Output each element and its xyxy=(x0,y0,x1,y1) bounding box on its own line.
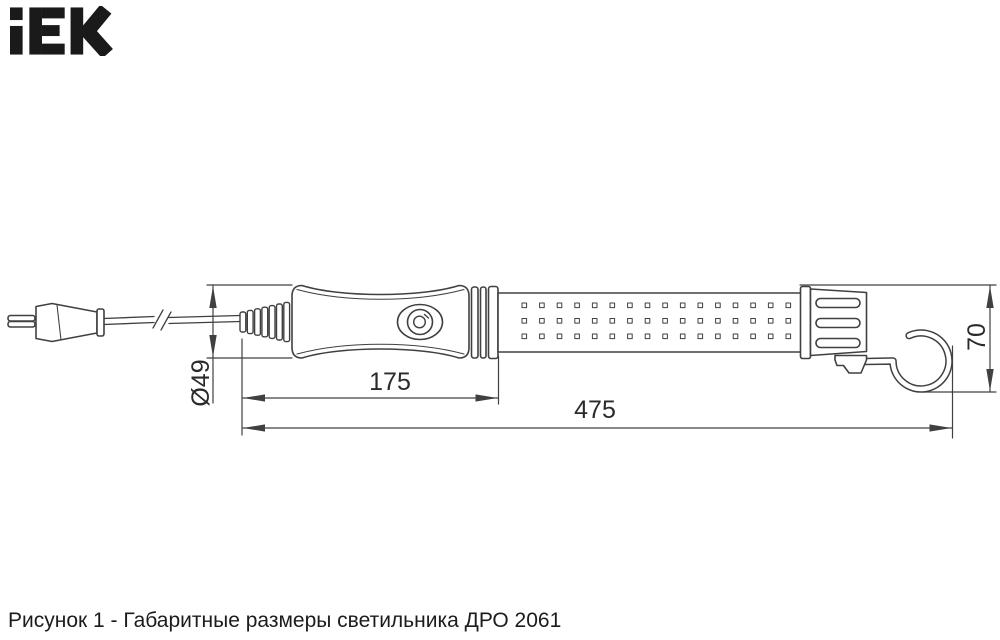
figure-caption: Рисунок 1 - Габаритные размеры светильни… xyxy=(8,609,561,633)
dimension-label-handle-length: 175 xyxy=(350,367,430,397)
dimensional-drawing xyxy=(0,0,1000,640)
power-button xyxy=(398,305,443,340)
end-cap xyxy=(811,289,867,356)
handle-collar xyxy=(472,287,499,359)
cord-break-symbol xyxy=(153,310,171,330)
hanging-hook xyxy=(865,333,949,389)
dimension-label-end-height: 70 xyxy=(962,297,992,377)
dimension-label-overall-length: 475 xyxy=(555,395,635,425)
strain-relief xyxy=(240,302,290,341)
dimension-label-diameter: Ø49 xyxy=(186,343,216,423)
power-cord xyxy=(104,310,240,330)
figure-page: Ø49 175 475 70 Рисунок 1 - Габаритные ра… xyxy=(0,0,1000,640)
plug xyxy=(8,304,104,342)
end-collar xyxy=(801,287,811,359)
hook-bracket xyxy=(835,356,867,374)
